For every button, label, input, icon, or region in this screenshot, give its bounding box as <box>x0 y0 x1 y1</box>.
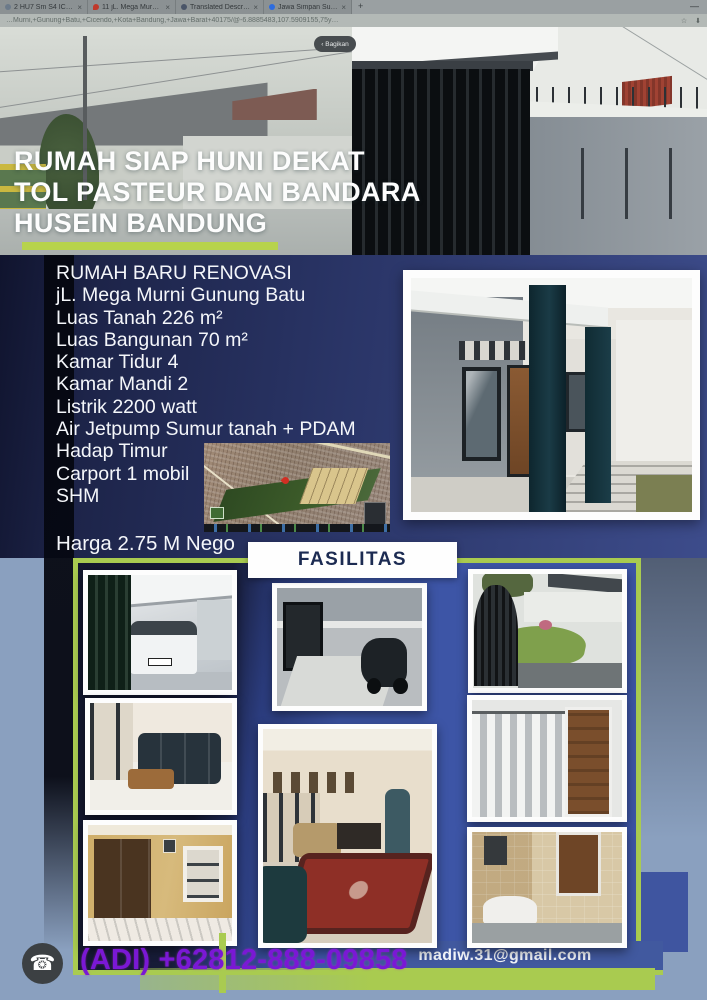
transom-windows <box>459 341 526 360</box>
photo-house-entrance <box>403 270 700 520</box>
share-button[interactable]: ‹ Bagikan <box>314 36 356 52</box>
photo-garden-gate <box>468 569 627 693</box>
bathroom-door <box>556 832 601 896</box>
white-car <box>130 621 198 674</box>
dark-pillar <box>585 327 610 503</box>
coffee-table <box>128 769 173 788</box>
window-wall <box>90 703 133 780</box>
satellite-map-thumbnail <box>204 443 390 532</box>
detail-line: Luas Tanah 226 m² <box>56 307 406 329</box>
bathroom-floor <box>472 923 622 943</box>
new-tab-button[interactable]: + <box>352 0 369 14</box>
inner-door <box>385 789 410 857</box>
tab-label: Translated Descri… <box>190 4 250 11</box>
license-plate <box>148 658 171 666</box>
price-text: Harga 2.75 M Nego <box>56 532 235 556</box>
front-window <box>462 367 501 461</box>
detail-line: Luas Bangunan 70 m² <box>56 329 406 351</box>
flowers <box>539 620 552 630</box>
photo-family-room-rug <box>258 724 437 948</box>
marble-floor <box>88 918 232 941</box>
vent-window <box>484 836 507 865</box>
tab-close-icon[interactable]: × <box>165 3 170 12</box>
carport-wall <box>197 600 232 660</box>
browser-tab-4[interactable]: Jawa Simpan Sur… × <box>264 0 352 14</box>
photo-shower-room <box>467 695 627 822</box>
fasilitas-header: FASILITAS <box>248 542 457 578</box>
share-label: ‹ Bagikan <box>321 41 348 48</box>
tab-close-icon[interactable]: × <box>253 3 258 12</box>
phone-icon: ☎ <box>29 951 55 976</box>
page-title: RUMAH SIAP HUNI DEKAT TOL PASTEUR DAN BA… <box>14 146 434 239</box>
tab-close-icon[interactable]: × <box>77 3 82 12</box>
title-line-3: HUSEIN BANDUNG <box>14 208 434 239</box>
dark-sofa <box>263 866 307 943</box>
bedroom-window <box>183 846 223 902</box>
wall-grooves <box>551 148 693 219</box>
photo-bedroom-wardrobe <box>83 820 237 946</box>
download-icon[interactable]: ⬇ <box>695 17 701 25</box>
phone-icon-badge: ☎ <box>22 943 63 984</box>
striped-curtain <box>472 714 565 817</box>
detail-line: Air Jetpump Sumur tanah + PDAM <box>56 418 406 440</box>
star-icon[interactable]: ☆ <box>681 17 687 25</box>
map-inset-thumbnail <box>364 502 386 525</box>
dark-pillar <box>529 285 566 512</box>
title-underline <box>22 242 278 250</box>
bath-fixture <box>483 896 537 925</box>
title-line-2: TOL PASTEUR DAN BANDARA <box>14 177 434 208</box>
browser-tab-2[interactable]: 11 jL. Mega Murni… × <box>88 0 176 14</box>
white-wall <box>616 320 692 460</box>
browser-tab-1[interactable]: 2 HU7 Sm S4 ICB… × <box>0 0 88 14</box>
title-line-1: RUMAH SIAP HUNI DEKAT <box>14 146 434 177</box>
photo-living-room-sofa <box>85 698 237 815</box>
browser-address-bar[interactable]: …Murni,+Gunung+Batu,+Cicendo,+Kota+Bandu… <box>0 14 707 27</box>
map-pin-favicon <box>93 4 99 10</box>
fasilitas-label: FASILITAS <box>298 549 407 571</box>
tab-close-icon[interactable]: × <box>341 3 346 12</box>
contact-phone-number: (ADI) +62812-888-09858 <box>80 944 408 977</box>
photo-bathroom <box>467 827 627 948</box>
tab-favicon <box>269 4 275 10</box>
email-text: madiw.31@gmail.com <box>418 947 591 965</box>
green-slat-gate <box>88 575 131 690</box>
photo-carport-car <box>83 570 237 695</box>
map-scale-badge <box>210 507 224 519</box>
garden-path <box>518 663 622 688</box>
picture-frames <box>273 772 361 793</box>
wooden-door <box>565 707 612 817</box>
tab-label: 11 jL. Mega Murni… <box>102 4 162 11</box>
wood-wardrobe <box>94 839 152 927</box>
low-cabinet <box>337 823 381 849</box>
detail-line: RUMAH BARU RENOVASI <box>56 262 406 284</box>
tab-label: 2 HU7 Sm S4 ICB… <box>14 4 74 11</box>
panel-shadow <box>641 558 707 888</box>
detail-line: Listrik 2200 watt <box>56 396 406 418</box>
browser-tab-3[interactable]: Translated Descri… × <box>176 0 264 14</box>
tab-favicon <box>181 4 187 10</box>
window-minimize-button[interactable]: — <box>682 0 707 14</box>
ceiling <box>88 825 232 835</box>
grass-patch <box>636 475 692 512</box>
tab-label: Jawa Simpan Sur… <box>278 4 338 11</box>
property-flyer: 2 HU7 Sm S4 ICB… × 11 jL. Mega Murni… × … <box>0 0 707 1000</box>
windows-taskbar <box>204 524 390 532</box>
iron-arch-gate <box>474 585 517 685</box>
photo-terrace-motorbike <box>272 583 427 711</box>
detail-line: jL. Mega Murni Gunung Batu <box>56 284 406 306</box>
browser-tab-bar: 2 HU7 Sm S4 ICB… × 11 jL. Mega Murni… × … <box>0 0 707 14</box>
house-entrance-scene <box>411 278 692 512</box>
wall-frame <box>163 839 176 853</box>
detail-line: Kamar Mandi 2 <box>56 373 406 395</box>
roof-eave <box>548 574 623 593</box>
tab-favicon <box>5 4 11 10</box>
blue-accent-block <box>641 872 688 952</box>
garden-wall <box>524 592 622 622</box>
bike-wheel <box>393 678 408 695</box>
url-text: …Murni,+Gunung+Batu,+Cicendo,+Kota+Bandu… <box>6 17 673 24</box>
detail-line: Kamar Tidur 4 <box>56 351 406 373</box>
